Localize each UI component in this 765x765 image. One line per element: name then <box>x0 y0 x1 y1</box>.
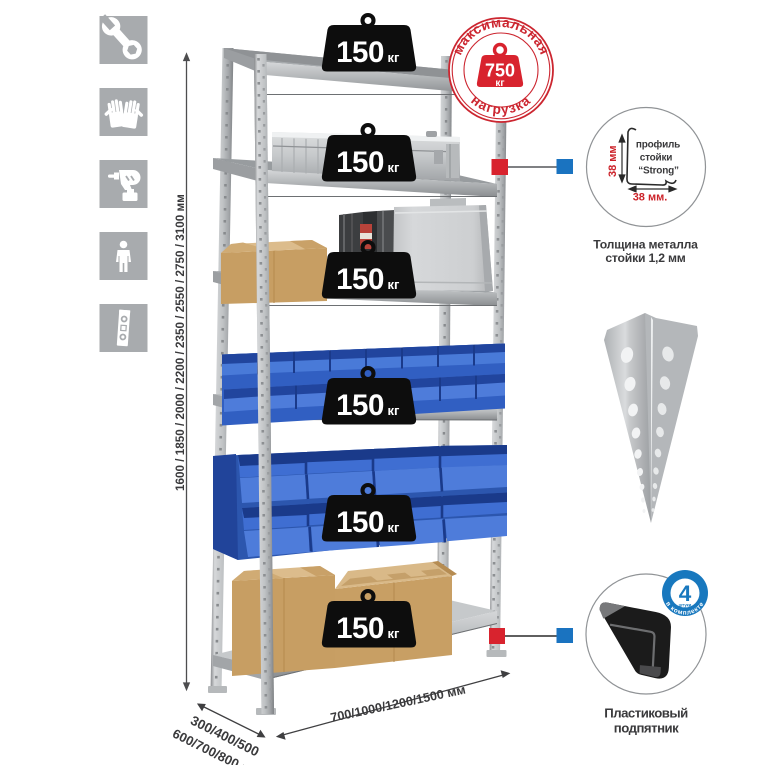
svg-text:кг: кг <box>388 403 401 418</box>
svg-text:150: 150 <box>336 36 384 69</box>
svg-text:“Strong”: “Strong” <box>638 166 679 177</box>
svg-text:стойки: стойки <box>640 153 673 164</box>
svg-text:кг: кг <box>495 78 504 89</box>
svg-text:стойки 1,2 мм: стойки 1,2 мм <box>605 251 685 265</box>
svg-text:150: 150 <box>336 146 384 179</box>
svg-text:Толщина металла: Толщина металла <box>593 238 698 252</box>
svg-text:Пластиковый: Пластиковый <box>604 706 688 721</box>
svg-text:кг: кг <box>388 520 401 535</box>
svg-text:38 мм.: 38 мм. <box>633 192 668 204</box>
svg-text:150: 150 <box>336 506 384 539</box>
svg-text:штуки: штуки <box>679 603 692 608</box>
svg-text:кг: кг <box>388 626 401 641</box>
svg-text:профиль: профиль <box>636 139 680 151</box>
svg-text:150: 150 <box>336 389 384 422</box>
svg-text:подпятник: подпятник <box>614 721 679 736</box>
svg-text:кг: кг <box>388 160 401 175</box>
svg-text:кг: кг <box>388 50 401 65</box>
svg-text:150: 150 <box>336 263 384 296</box>
svg-text:1600 / 1850 / 2000 / 2200 / 23: 1600 / 1850 / 2000 / 2200 / 2350 / 2550 … <box>174 194 187 491</box>
svg-text:38 мм: 38 мм <box>607 145 619 177</box>
svg-text:кг: кг <box>388 277 401 292</box>
svg-text:150: 150 <box>336 612 384 645</box>
